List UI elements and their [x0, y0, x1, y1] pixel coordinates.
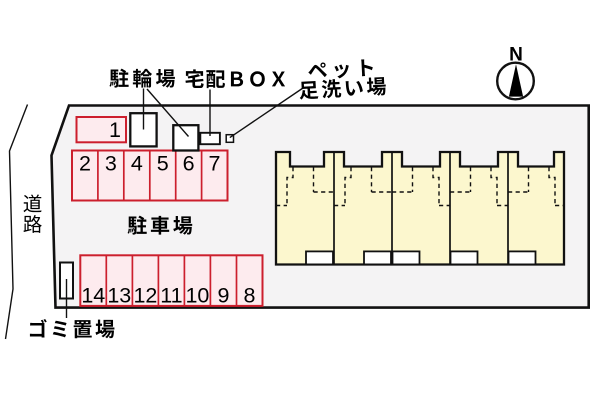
svg-text:3: 3 [105, 151, 117, 175]
svg-text:N: N [509, 45, 523, 66]
svg-text:8: 8 [244, 283, 256, 307]
svg-text:1: 1 [109, 118, 121, 142]
svg-text:10: 10 [185, 283, 209, 307]
svg-text:11: 11 [160, 283, 182, 307]
svg-text:12: 12 [133, 283, 157, 307]
svg-text:13: 13 [107, 283, 131, 307]
svg-text:2: 2 [79, 151, 91, 175]
svg-text:4: 4 [131, 151, 143, 175]
svg-text:7: 7 [209, 151, 221, 175]
svg-text:5: 5 [157, 151, 169, 175]
svg-text:14: 14 [81, 283, 105, 307]
svg-text:6: 6 [183, 151, 195, 175]
svg-text:9: 9 [218, 283, 230, 307]
